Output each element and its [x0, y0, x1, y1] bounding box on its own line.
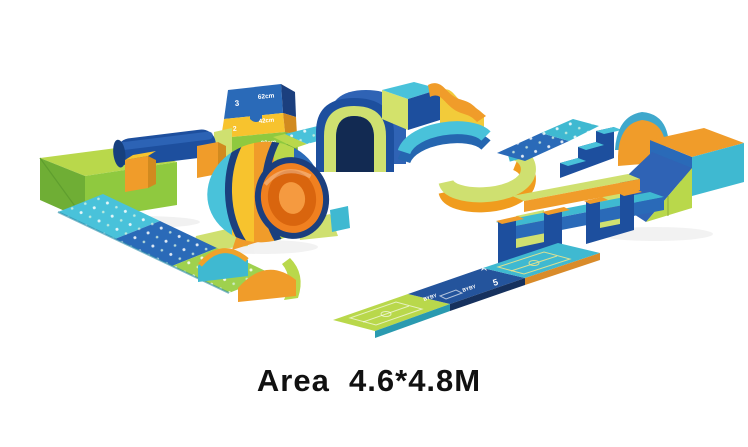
game-mats: BYBY BYBY 5 — [333, 243, 600, 338]
roller-post-left — [125, 156, 148, 192]
tier2-number-label: 2 — [233, 126, 238, 133]
curved-balance-beams — [404, 128, 528, 205]
tier3-height-label: 62cm — [258, 93, 275, 101]
area-caption: Area 4.6*4.8M — [0, 363, 738, 399]
tunnel-opening — [336, 116, 374, 172]
soft-play-product-photo: 3 62cm 2 42cm 22cm — [0, 0, 748, 447]
